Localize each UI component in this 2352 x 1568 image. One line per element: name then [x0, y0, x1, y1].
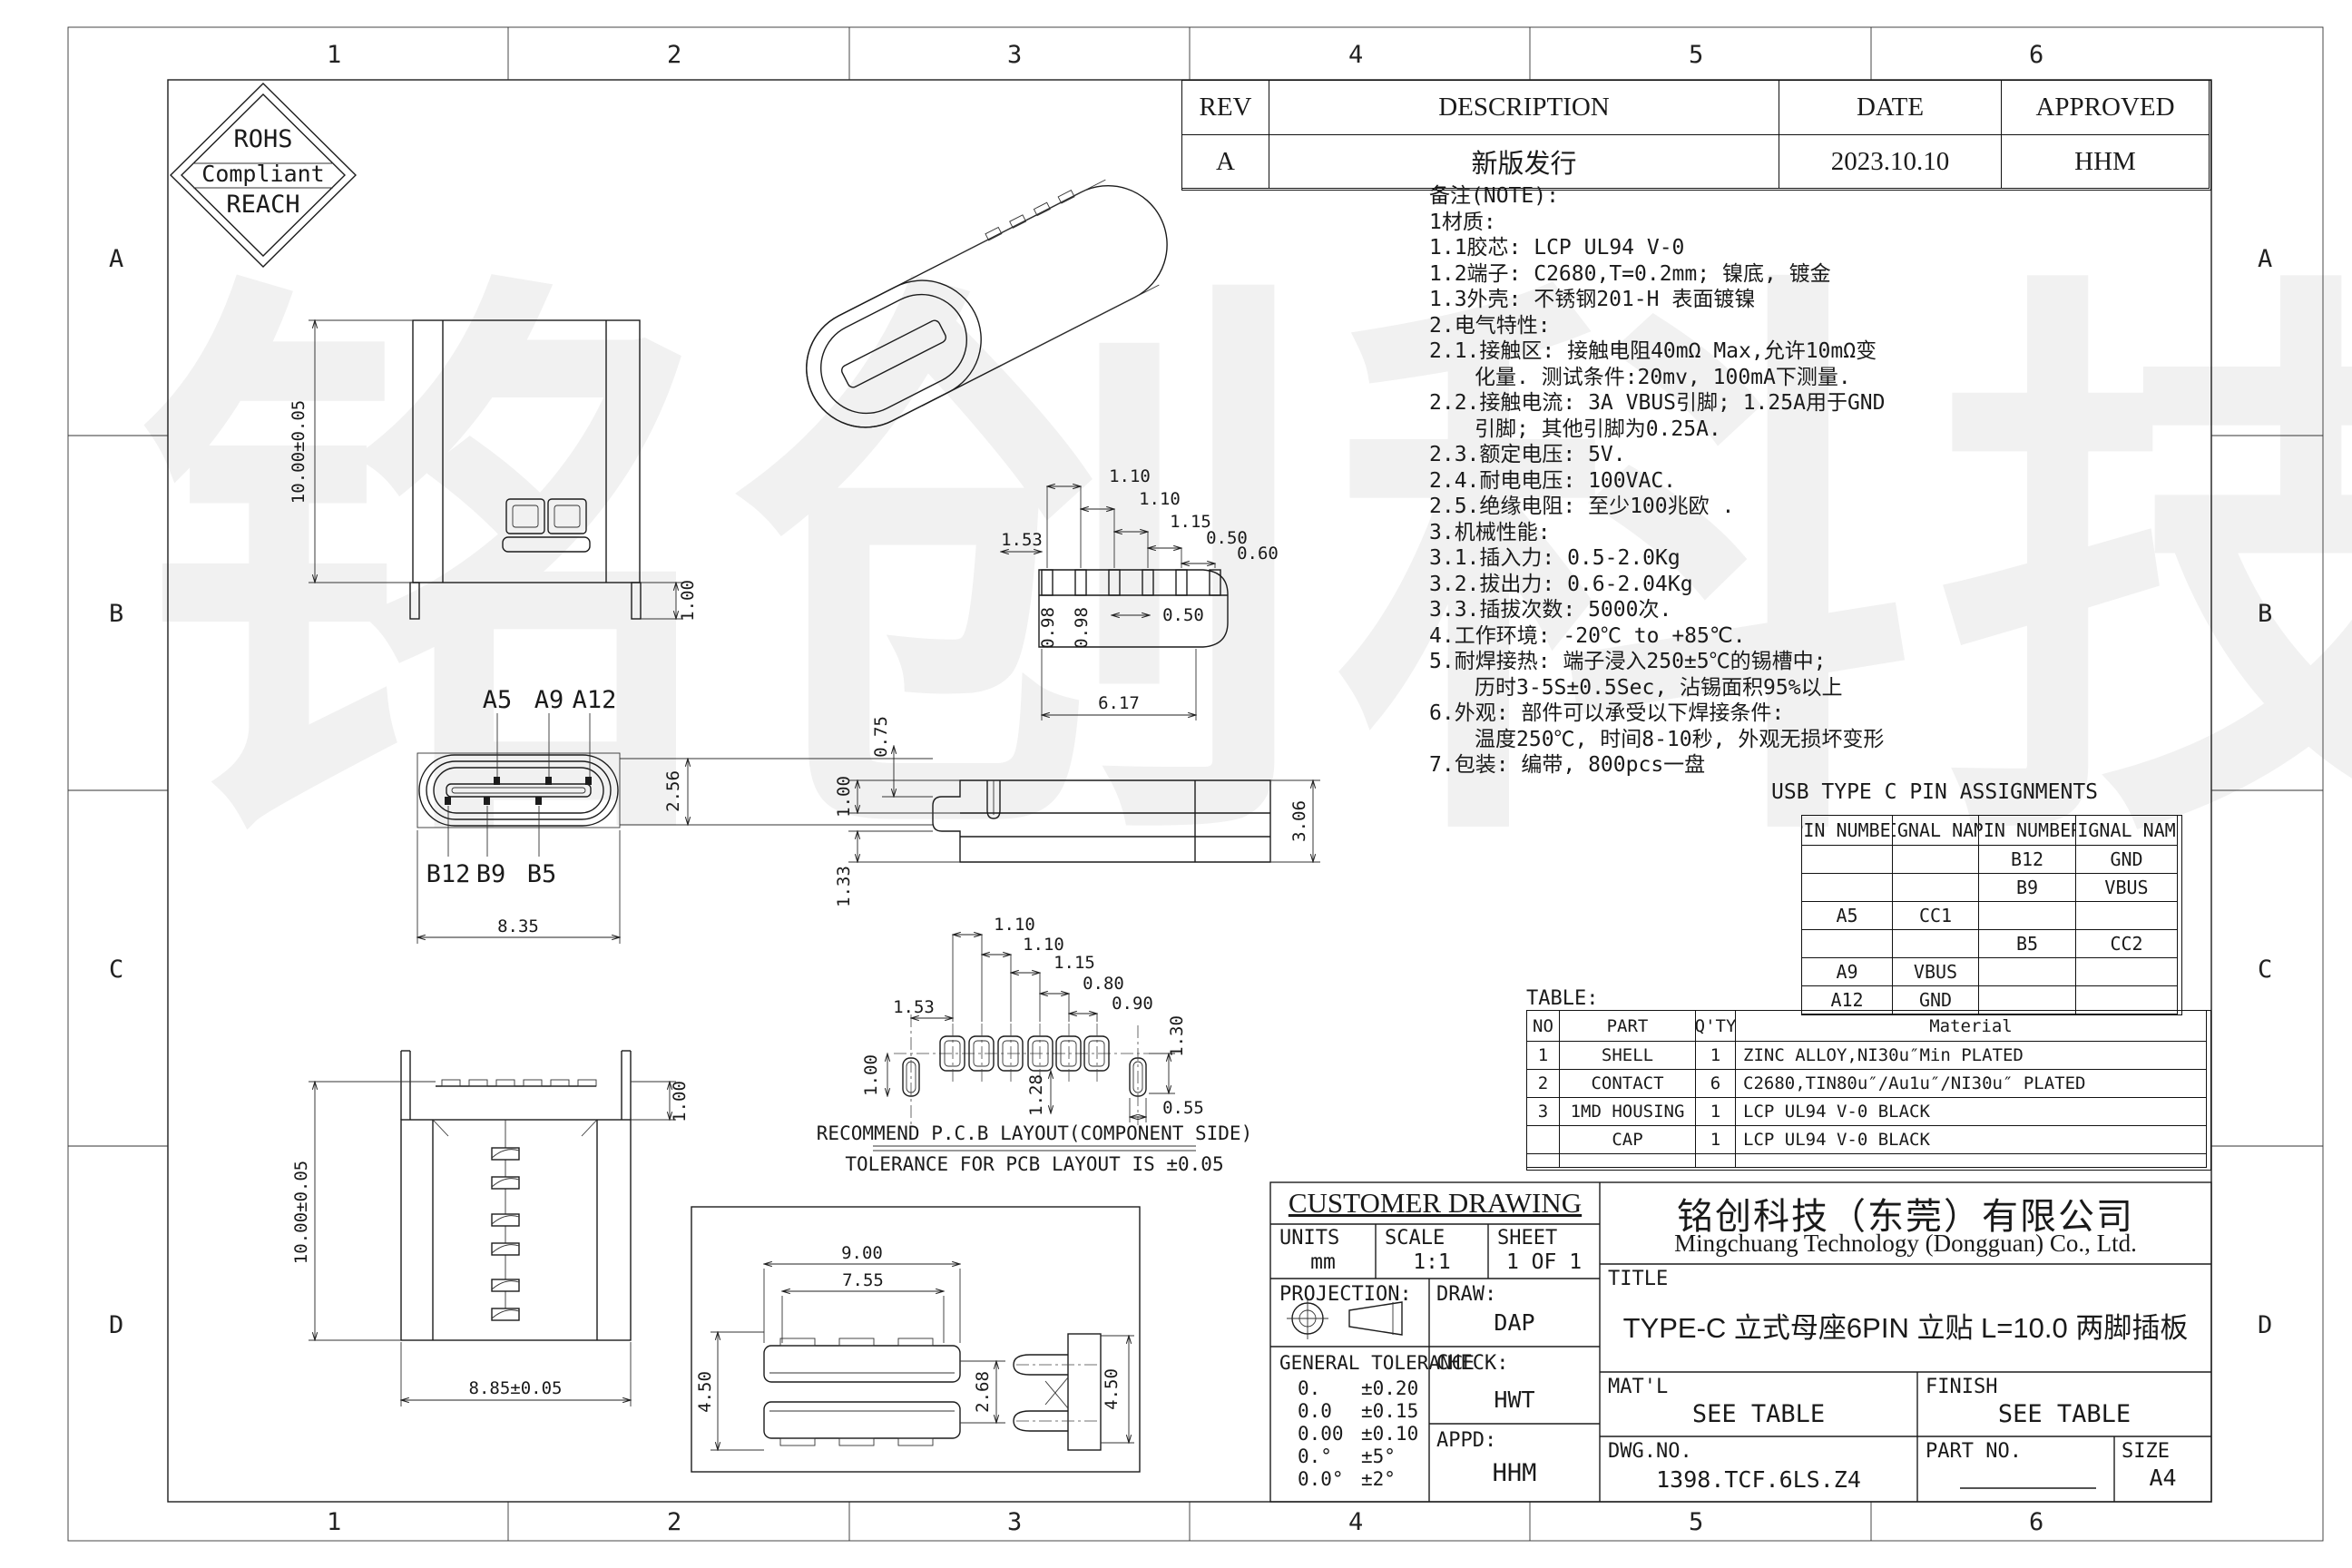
note-line: 引脚; 其他引脚为0.25A. [1429, 416, 2055, 443]
dim-label: 9.00 [841, 1243, 883, 1263]
pin-cell: CC1 [1893, 902, 1979, 930]
appd-label: APPD: [1436, 1429, 1496, 1452]
tol-right: ±0.10 [1361, 1423, 1443, 1445]
mat-col-header: NO [1527, 1011, 1560, 1042]
note-line: 化量. 测试条件:20mv, 100mA下测量. [1429, 365, 2055, 391]
border-col-label: 5 [1689, 41, 1703, 69]
tol-left: 0.0° [1298, 1468, 1361, 1491]
date-value: 2023.10.10 [1779, 135, 2002, 189]
mat-cell: 1 [1696, 1098, 1736, 1126]
draw-label: DRAW: [1436, 1283, 1496, 1306]
pin-cell [1893, 846, 1979, 874]
note-line: 1.2端子: C2680,T=0.2mm; 镍底, 镀金 [1429, 261, 2055, 288]
dim-label: 1.53 [1001, 530, 1043, 550]
pin-label: A5 [483, 686, 513, 714]
dim-label: 1.10 [1023, 935, 1064, 955]
check-value: HWT [1429, 1387, 1600, 1413]
dim-label: 10.00±0.05 [291, 1161, 311, 1264]
border-col-label: 6 [2029, 41, 2043, 69]
pin-assignment-table: PIN NUMBER SIGNAL NAME PIN NUMBER SIGNAL… [1801, 815, 2182, 1015]
rohs-line2: Compliant [172, 161, 354, 187]
pcb-note-2: TOLERANCE FOR PCB LAYOUT IS ±0.05 [845, 1153, 1223, 1175]
note-line: 6.外观: 部件可以承受以下焊接条件: [1429, 701, 2055, 727]
revision-table: REV DESCRIPTION DATE APPROVED A 新版发行 202… [1181, 80, 2211, 191]
note-line: 2.4.耐电电压: 100VAC. [1429, 468, 2055, 495]
pin-label: A12 [573, 686, 617, 714]
pin-label: B9 [476, 860, 506, 888]
pin-cell [1802, 874, 1893, 902]
dim-label: 1.10 [1109, 466, 1151, 486]
border-col-label: 2 [667, 1508, 681, 1536]
mat-cell-empty [1560, 1154, 1696, 1168]
border-row-label: B [2258, 600, 2272, 628]
dim-label: 0.55 [1162, 1098, 1204, 1118]
appd-value: HHM [1429, 1459, 1600, 1487]
mat-cell-empty [1696, 1154, 1736, 1168]
pin-cell: B9 [1979, 874, 2076, 902]
mat-cell: 1MD HOUSING [1560, 1098, 1696, 1126]
view-detail [691, 1207, 1140, 1472]
note-line: 2.2.接触电流: 3A VBUS引脚; 1.25A用于GND [1429, 390, 2055, 416]
tol-left: 0.0 [1298, 1400, 1361, 1423]
mat-cell: 6 [1696, 1070, 1736, 1098]
mat-cell: CONTACT [1560, 1070, 1696, 1098]
dim-label: 0.80 [1083, 974, 1124, 994]
note-line: 7.包装: 编带, 800pcs一盘 [1429, 752, 2055, 779]
tol-left: 0.° [1298, 1445, 1361, 1468]
dim-label: 1.28 [1026, 1074, 1046, 1116]
note-line: 1.3外壳: 不锈钢201-H 表面镀镍 [1429, 287, 2055, 313]
check-label: CHECK: [1436, 1352, 1508, 1375]
dwgno-label: DWG.NO. [1608, 1440, 1692, 1463]
note-line: 历时3-5S±0.5Sec, 沾锡面积95%以上 [1429, 675, 2055, 701]
note-line: 2.电气特性: [1429, 313, 2055, 339]
dim-label: 4.50 [695, 1371, 715, 1413]
mat-cell: LCP UL94 V-0 BLACK [1736, 1126, 2207, 1154]
description-value: 新版发行 [1269, 135, 1779, 189]
pin-col-header: PIN NUMBER [1979, 816, 2076, 846]
company-name-en: Mingchuang Technology (Dongguan) Co., Lt… [1600, 1230, 2211, 1258]
pin-col-header: SIGNAL NAME [2076, 816, 2178, 846]
size-label: SIZE [2122, 1440, 2170, 1463]
pin-label: A9 [534, 686, 564, 714]
dwgno-value: 1398.TCF.6LS.Z4 [1600, 1466, 1917, 1493]
view-front [417, 713, 933, 944]
pin-cell [2076, 902, 2178, 930]
dim-label: 0.50 [1162, 605, 1204, 625]
units-value: mm [1270, 1250, 1376, 1274]
note-line: 5.耐焊接热: 端子浸入250±5℃的锡槽中; [1429, 649, 2055, 675]
draw-value: DAP [1429, 1309, 1600, 1336]
dim-label: 1.15 [1053, 953, 1095, 973]
border-row-label: C [109, 955, 123, 984]
dim-label: 1.10 [994, 915, 1035, 935]
dim-label: 1.00 [670, 1081, 690, 1122]
dim-label: 6.17 [1098, 693, 1140, 713]
view-rear [309, 1051, 676, 1406]
notes-block: 备注(NOTE): 1材质: 1.1胶芯: LCP UL94 V-0 1.2端子… [1429, 183, 2055, 779]
pin-cell [1893, 930, 1979, 958]
material-table: NO PART Q'TY Material 1 SHELL 1 ZINC ALL… [1526, 1010, 2211, 1171]
note-line: 1.1胶芯: LCP UL94 V-0 [1429, 235, 2055, 261]
note-line: 2.3.额定电压: 5V. [1429, 442, 2055, 468]
finish-label: FINISH [1926, 1376, 1997, 1398]
note-line: 备注(NOTE): [1429, 183, 2055, 210]
dim-label: 8.85±0.05 [469, 1378, 563, 1398]
finish-value: SEE TABLE [1917, 1400, 2211, 1428]
pin-cell: VBUS [1893, 958, 1979, 986]
note-line: 温度250℃, 时间8-10秒, 外观无损坏变形 [1429, 727, 2055, 753]
mat-cell [1527, 1126, 1560, 1154]
border-row-label: A [109, 245, 123, 273]
mat-cell-empty [1736, 1154, 2207, 1168]
dim-label: 0.90 [1112, 994, 1153, 1014]
rohs-line1: ROHS [172, 125, 354, 153]
border-row-label: A [2258, 245, 2272, 273]
tolerance-rows: 0.±0.20 0.0±0.15 0.00±0.10 0.°±5° 0.0°±2… [1298, 1377, 1443, 1491]
pin-cell: CC2 [2076, 930, 2178, 958]
pin-cell [1979, 958, 2076, 986]
border-col-label: 1 [327, 41, 341, 69]
approved-value: HHM [2002, 135, 2210, 189]
border-row-label: D [2258, 1311, 2272, 1339]
pin-cell: B12 [1979, 846, 2076, 874]
dim-label: 0.98 [1038, 607, 1058, 649]
pin-col-header: SIGNAL NAME [1893, 816, 1979, 846]
border-col-label: 4 [1348, 41, 1363, 69]
dim-label: 1.00 [834, 776, 854, 818]
projection-cone-icon [1349, 1302, 1402, 1335]
title-value: TYPE-C 立式母座6PIN 立贴 L=10.0 两脚插板 [1600, 1305, 2211, 1346]
pin-cell: A9 [1802, 958, 1893, 986]
mat-cell: CAP [1560, 1126, 1696, 1154]
mat-cell: LCP UL94 V-0 BLACK [1736, 1098, 2207, 1126]
border-col-label: 5 [1689, 1508, 1703, 1536]
dim-label: 2.68 [973, 1371, 993, 1413]
view-side [848, 746, 1320, 862]
pin-cell [1802, 930, 1893, 958]
pin-col-header: PIN NUMBER [1802, 816, 1893, 846]
sheet-value: 1 OF 1 [1488, 1250, 1600, 1274]
border-col-label: 2 [667, 41, 681, 69]
mat-cell: 1 [1696, 1126, 1736, 1154]
pin-cell [2076, 958, 2178, 986]
dim-label: 7.55 [842, 1270, 884, 1290]
mat-cell: ZINC ALLOY,NI30u″Min PLATED [1736, 1042, 2207, 1070]
border-col-label: 3 [1007, 1508, 1022, 1536]
border-row-label: B [109, 600, 123, 628]
rohs-line3: REACH [172, 191, 354, 219]
pin-table-title: USB TYPE C PIN ASSIGNMENTS [1771, 780, 2098, 804]
partno-label: PART NO. [1926, 1440, 2022, 1463]
pin-cell [1802, 846, 1893, 874]
pin-cell: GND [2076, 846, 2178, 874]
border-col-label: 3 [1007, 41, 1022, 69]
dim-label: 0.75 [871, 716, 891, 758]
sheet-label: SHEET [1497, 1227, 1557, 1249]
dim-label: 1.30 [1167, 1015, 1187, 1057]
view-elevation [309, 320, 682, 619]
mat-cell: C2680,TIN80u″/Au1u″/NI30u″ PLATED [1736, 1070, 2207, 1098]
rev-value: A [1182, 135, 1269, 189]
scale-label: SCALE [1385, 1227, 1445, 1249]
dim-label: 1.53 [893, 997, 935, 1017]
pin-cell [1979, 902, 2076, 930]
pin-cell: VBUS [2076, 874, 2178, 902]
dim-label: 4.50 [1102, 1368, 1122, 1410]
view-pcb [873, 935, 1196, 1151]
note-line: 3.机械性能: [1429, 520, 2055, 546]
pin-label: B5 [527, 860, 557, 888]
customer-drawing-title: CUSTOMER DRAWING [1270, 1187, 1600, 1220]
mat-cell: 1 [1527, 1042, 1560, 1070]
border-col-label: 6 [2029, 1508, 2043, 1536]
note-line: 2.1.接触区: 接触电阻40mΩ Max,允许10mΩ变 [1429, 338, 2055, 365]
mat-cell: SHELL [1560, 1042, 1696, 1070]
border-col-label: 1 [327, 1508, 341, 1536]
pin-cell [1893, 874, 1979, 902]
description-header: DESCRIPTION [1269, 81, 1779, 135]
mat-cell: 2 [1527, 1070, 1560, 1098]
view-isometric [783, 160, 1187, 447]
dimension-labels: 10.00±0.05 1.00 1.53 1.10 1.10 1.15 0.50… [289, 400, 1309, 1413]
size-value: A4 [2114, 1465, 2211, 1491]
dim-label: 10.00±0.05 [289, 400, 309, 504]
mat-cell: 1 [1696, 1042, 1736, 1070]
dim-label: 0.98 [1072, 607, 1092, 649]
material-table-label: TABLE: [1526, 987, 1598, 1010]
approved-header: APPROVED [2002, 81, 2210, 135]
pin-cell: B5 [1979, 930, 2076, 958]
note-line: 3.2.拔出力: 0.6-2.04Kg [1429, 572, 2055, 598]
pin-label: B12 [426, 860, 471, 888]
mat-cell: 3 [1527, 1098, 1560, 1126]
mat-col-header: PART [1560, 1011, 1696, 1042]
mat-cell-empty [1527, 1154, 1560, 1168]
scale-value: 1:1 [1376, 1250, 1488, 1274]
title-label: TITLE [1608, 1268, 1668, 1290]
units-label: UNITS [1279, 1227, 1339, 1249]
border-col-label: 4 [1348, 1508, 1363, 1536]
pin-cell: A5 [1802, 902, 1893, 930]
tol-left: 0. [1298, 1377, 1361, 1400]
note-line: 4.工作环境: -20℃ to +85℃. [1429, 623, 2055, 650]
mat-col-header: Q'TY [1696, 1011, 1736, 1042]
note-line: 3.3.插拔次数: 5000次. [1429, 597, 2055, 623]
border-row-label: D [109, 1311, 123, 1339]
date-header: DATE [1779, 81, 2002, 135]
dim-label: 1.15 [1170, 512, 1211, 532]
dim-label: 8.35 [497, 916, 539, 936]
drawing-sheet: 铭创科技 .ln{stroke:#1c1c1c;stroke-width:1.4… [0, 0, 2352, 1568]
note-line: 1材质: [1429, 210, 2055, 236]
dim-label: 2.56 [663, 770, 683, 812]
matl-value: SEE TABLE [1600, 1400, 1917, 1428]
dim-label: 1.00 [678, 580, 698, 622]
mat-col-header: Material [1736, 1011, 2207, 1042]
matl-label: MAT'L [1608, 1376, 1668, 1398]
dim-label: 1.00 [861, 1054, 881, 1096]
dim-label: 3.06 [1289, 800, 1309, 842]
dim-label: 1.33 [834, 866, 854, 907]
projection-label: PROJECTION: [1279, 1283, 1412, 1306]
rev-header: REV [1182, 81, 1269, 135]
note-line: 3.1.插入力: 0.5-2.0Kg [1429, 545, 2055, 572]
dim-label: 1.10 [1139, 489, 1181, 509]
border-row-label: C [2258, 955, 2272, 984]
dim-label: 0.60 [1237, 544, 1279, 563]
tol-left: 0.00 [1298, 1423, 1361, 1445]
pcb-note-1: RECOMMEND P.C.B LAYOUT(COMPONENT SIDE) [817, 1122, 1252, 1144]
note-line: 2.5.绝缘电阻: 至少100兆欧 . [1429, 494, 2055, 520]
